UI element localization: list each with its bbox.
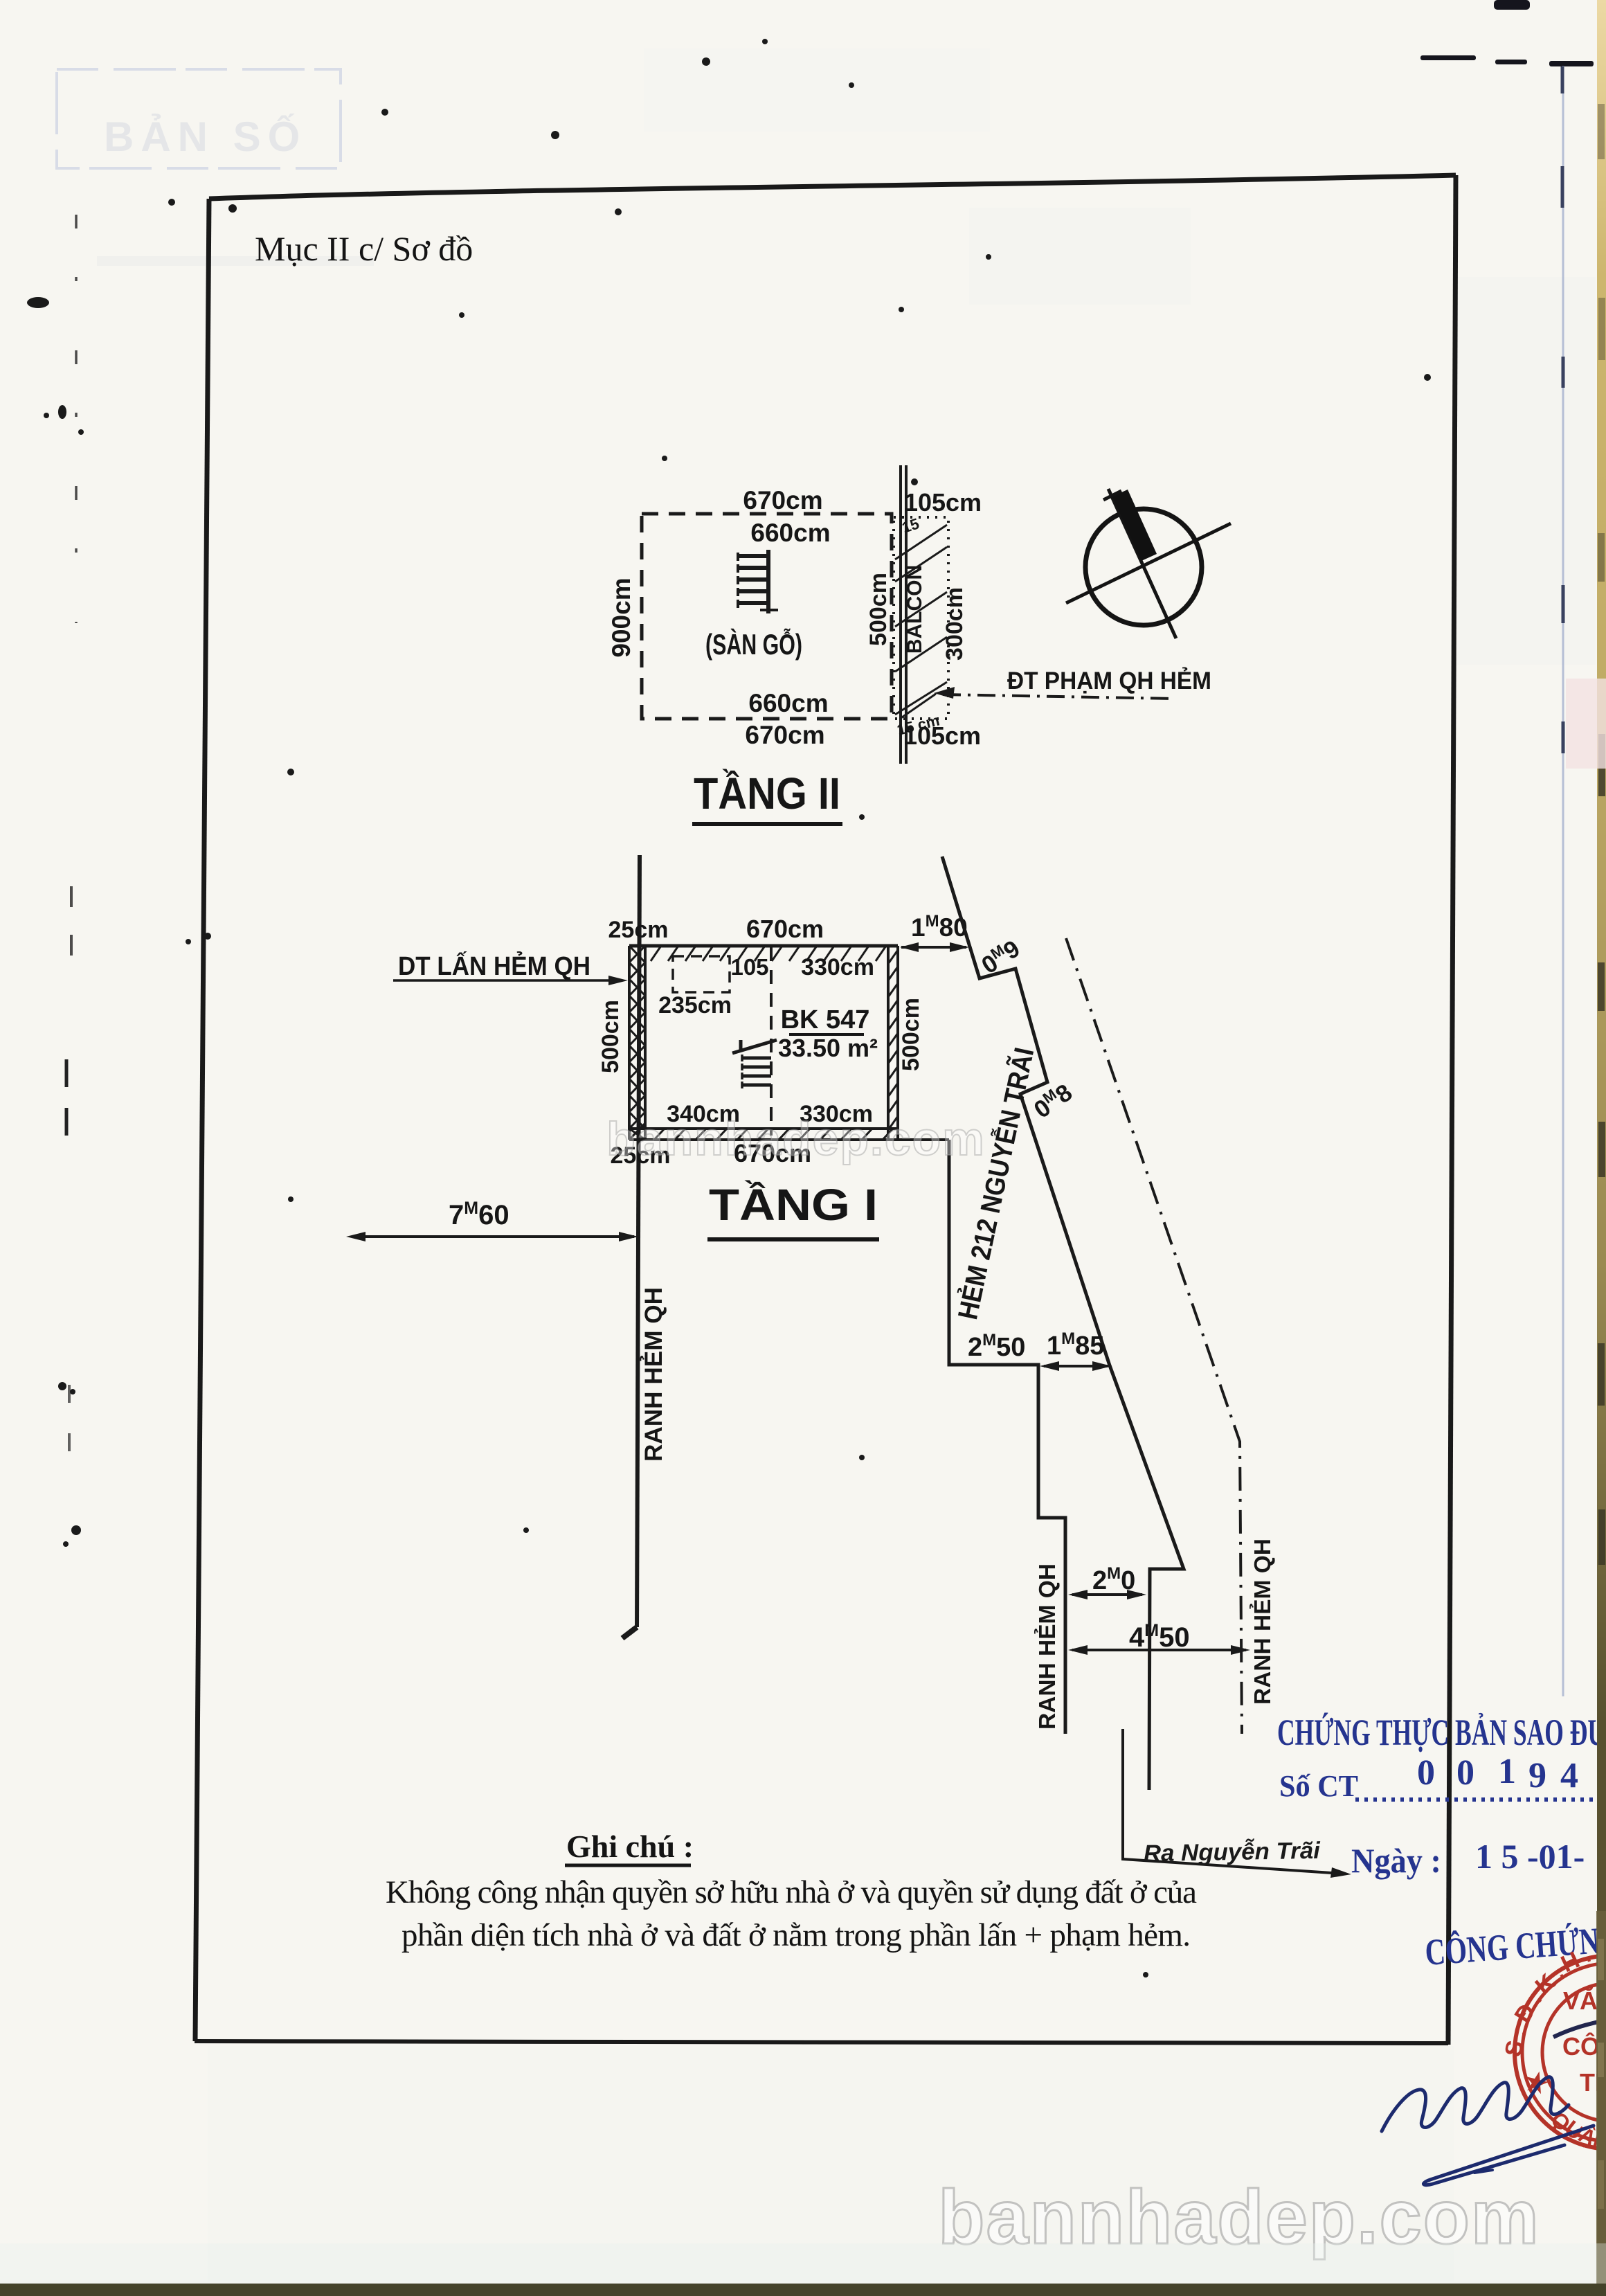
svg-text:1M85: 1M85 [1047,1329,1104,1361]
svg-text:4M50: 4M50 [1129,1621,1190,1653]
svg-text:bannhadep.com: bannhadep.com [606,1113,985,1165]
svg-text:500cm: 500cm [898,998,924,1071]
svg-text:(SÀN GỖ): (SÀN GỖ) [705,627,802,661]
svg-text:500cm: 500cm [597,1000,624,1073]
svg-text:660cm: 660cm [750,519,830,547]
svg-text:phần diện tích nhà ở và đất ở: phần diện tích nhà ở và đất ở nằm trong … [401,1917,1191,1953]
svg-text:330cm: 330cm [801,954,874,980]
svg-text:2M50: 2M50 [968,1331,1025,1362]
svg-text:ĐT PHẠM QH HẺM: ĐT PHẠM QH HẺM [1007,667,1211,694]
svg-text:Mục II c/ Sơ đồ: Mục II c/ Sơ đồ [255,229,473,268]
svg-text:TẦNG I: TẦNG I [709,1180,878,1230]
svg-text:DT LẤN HẺM QH: DT LẤN HẺM QH [398,951,590,981]
svg-text:105cm: 105cm [904,488,982,517]
svg-text:660cm: 660cm [748,689,828,717]
svg-text:RANH HẺM QH: RANH HẺM QH [1034,1563,1060,1730]
svg-text:7M60: 7M60 [449,1199,509,1230]
svg-text:TẦNG II: TẦNG II [694,769,840,818]
svg-text:500cm: 500cm [865,573,892,646]
svg-text:Không công nhận quyền sở hữu n: Không công nhận quyền sở hữu nhà ở và qu… [386,1874,1197,1910]
svg-text:BALCON: BALCON [903,565,926,654]
svg-text:1 5 -01-: 1 5 -01- [1475,1837,1585,1876]
svg-text:Ghi chú :: Ghi chú : [566,1829,694,1864]
svg-text:Ngày :: Ngày : [1351,1841,1441,1880]
svg-text:4: 4 [1560,1756,1578,1795]
svg-text:25cm: 25cm [608,917,669,943]
svg-text:BK 547: BK 547 [781,1005,870,1034]
svg-text:300cm: 300cm [941,587,968,661]
svg-text:670cm: 670cm [743,486,822,514]
svg-text:RANH HẺM QH: RANH HẺM QH [1249,1539,1275,1705]
svg-text:670cm: 670cm [745,721,824,749]
svg-text:105: 105 [730,954,768,980]
svg-text:0: 0 [1417,1753,1435,1793]
svg-text:670cm: 670cm [746,915,824,943]
svg-text:235cm: 235cm [658,992,732,1019]
svg-text:Số CT: Số CT [1279,1769,1358,1803]
svg-text:900cm: 900cm [607,577,635,657]
svg-text:33.50 m²: 33.50 m² [778,1034,878,1062]
svg-text:1: 1 [1498,1752,1516,1791]
svg-text:0: 0 [1456,1753,1474,1793]
svg-text:RANH HẺM QH: RANH HẺM QH [640,1287,667,1462]
svg-text:Ra Nguyễn Trãi: Ra Nguyễn Trãi [1144,1838,1321,1867]
svg-text:BẢN SỐ: BẢN SỐ [104,114,307,160]
svg-text:CHỨNG THỰC BẢN SAO ĐU: CHỨNG THỰC BẢN SAO ĐU [1277,1712,1605,1753]
svg-text:9: 9 [1528,1756,1546,1795]
